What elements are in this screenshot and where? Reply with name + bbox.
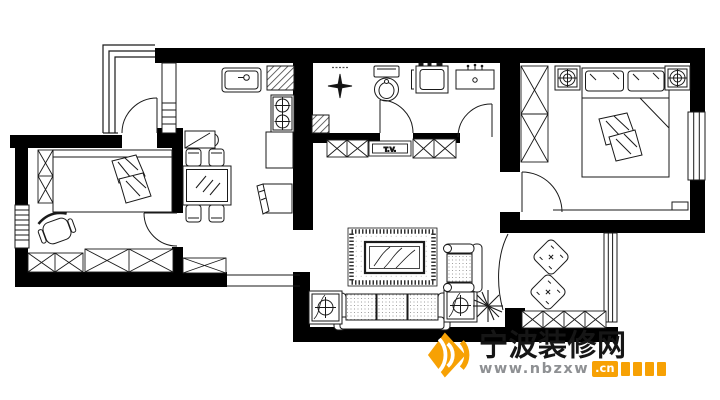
dining-chair [186,205,201,222]
coffee-table [365,242,424,273]
hall-cabinet-left [327,140,368,157]
hallway-cabinets: T.V. [327,139,456,158]
left-bedroom-door-swing-arc [144,213,177,246]
master-door-swing-arc [522,172,562,212]
console-table [185,131,218,148]
plant-icon [473,290,503,322]
sofa-cushion [346,294,376,320]
dining-chair [209,149,224,166]
left-bedroom [28,150,177,272]
floor-plan-page: T.V. [0,0,720,400]
bathroom-flue-shaft [312,115,329,133]
watermark-site-name: 宁波装修网 [479,329,666,361]
window-master-right [688,112,705,180]
watermark: 宁波装修网 www.nbzxw.cn [427,330,666,380]
watermark-url-prefix: www.nbzxw [479,362,589,377]
wall-leftroom-left-upper [15,148,28,205]
dining-chair [209,205,224,222]
dining-chair [186,149,201,166]
bathroom-door [458,104,492,137]
storage-bench [522,311,606,328]
hall-cabinet-right [413,139,456,158]
wall-bedroom-left-upper [500,63,520,172]
left-bedroom-door [144,213,177,246]
window-entry-post [162,63,176,133]
wall-bottom-left-band [15,272,227,287]
watermark-text: 宁波装修网 www.nbzxw.cn [479,330,666,377]
sofa-cushion [377,294,407,320]
window-balcony-right [604,233,617,322]
radiator-left-wall [15,205,29,248]
wall-kitchen-bath-divider [293,48,313,230]
armchair [444,244,483,292]
toilet-door-swing-arc [380,100,413,133]
wall-leftroom-right-lower [172,247,183,272]
master-bedroom [521,66,690,212]
watermark-deco-block [621,362,630,376]
single-bed [53,150,172,212]
tv-cabinet: T.V. [369,141,411,156]
watermark-logo-icon [427,330,474,380]
watermark-deco-block [657,362,666,376]
side-table-left [309,291,342,324]
kitchen-sink [222,68,261,92]
bed-pillow [628,71,664,91]
washing-machine [412,64,449,94]
master-wardrobe [521,66,548,162]
faucet-icon [244,75,250,81]
dining-table [183,166,231,205]
tv-label: T.V. [384,146,397,154]
desk-chair [34,208,78,247]
dining-area [183,131,231,273]
wall-leftroom-right-upper [172,148,183,213]
watermark-deco-block [633,362,642,376]
kitchen-counter [266,132,293,168]
wall-leftroom-top [10,135,122,148]
dining-side-cabinet [183,258,226,273]
master-bedroom-door [522,172,562,212]
watermark-url-row: www.nbzxw.cn [479,361,666,377]
side-table-right [444,289,477,322]
wall-bedroom-bottom [505,220,705,233]
desk-cabinet-small [28,253,83,272]
left-wardrobe [38,150,53,203]
toilet-room-door [380,100,413,133]
living-room [309,228,503,330]
wall-right-upper [690,63,705,112]
sofa-cushion [408,294,438,320]
watermark-deco-block [645,362,654,376]
window-corner-balcony-lines [103,45,155,133]
bathroom [312,64,494,138]
floor-pouf [532,238,570,276]
wall-bedroom-left-lower [500,212,520,233]
double-bed [582,68,669,177]
nightstand-right [665,66,690,90]
armchair-seat [447,254,472,282]
kitchen-fridge [257,184,292,214]
sofa [334,293,450,330]
wash-basin [456,64,494,89]
curtain-line [499,234,508,310]
entry-door-swing-arc [122,98,157,133]
shower-drain-symbol [328,74,352,98]
entry-door [122,98,157,133]
toilet [374,66,399,101]
window-bedroom-balcony-sill [553,202,688,210]
wall-top [155,48,705,63]
floor-pouf [529,273,567,311]
desk-cabinet-large [85,249,173,272]
wall-right-lower [690,180,705,222]
bathroom-door-swing-arc [458,104,492,137]
opening-living-bottom [227,275,300,286]
kitchen-flue-shaft [267,66,294,90]
watermark-url-tld: .cn [592,361,617,377]
kitchen-stove [271,95,294,132]
bed-pillow [586,71,624,91]
nightstand-left [555,66,580,90]
